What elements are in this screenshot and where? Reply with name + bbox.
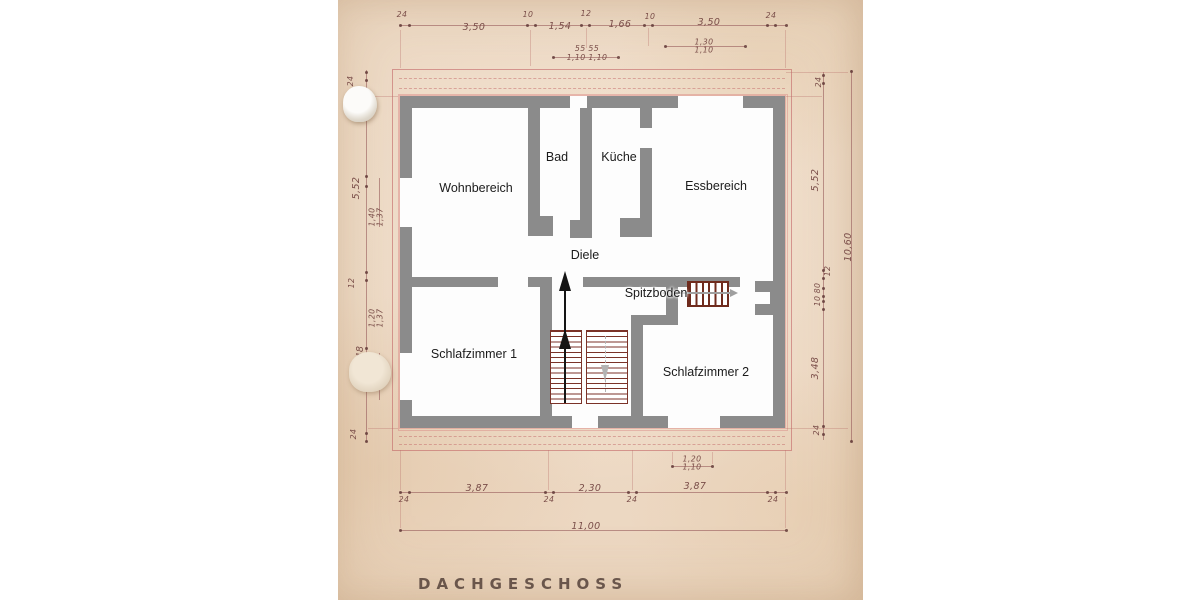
wall-segment — [598, 416, 668, 428]
extension-line — [632, 450, 633, 490]
dimension-tick — [580, 24, 583, 27]
dimension-tick — [365, 71, 368, 74]
dimension-tick — [365, 440, 368, 443]
dim-label: 1,30 1,10 — [695, 39, 714, 56]
dimension-tick — [822, 308, 825, 311]
room-label-spitzboden: Spitzboden — [625, 286, 688, 300]
roof-dash-line — [399, 436, 785, 437]
walking-line-arrow-icon — [601, 365, 609, 381]
dimension-tick — [635, 491, 638, 494]
dim-label: 1,20 1,10 — [683, 456, 702, 473]
dim-label: 1,10 1,10 — [567, 54, 608, 62]
stairs-up-arrowhead-icon — [559, 329, 571, 349]
extension-line — [400, 450, 401, 490]
hole-punch — [343, 86, 377, 122]
dim-label: 3,87 — [466, 484, 489, 494]
wall-segment — [580, 108, 592, 220]
dimension-tick — [588, 24, 591, 27]
dimension-tick — [785, 529, 788, 532]
dimension-tick — [822, 300, 825, 303]
wall-segment — [400, 96, 570, 108]
room-label-essbereich: Essbereich — [685, 179, 747, 193]
dim-label: 10,60 — [844, 232, 854, 261]
dimension-tick — [617, 56, 620, 59]
dimension-tick — [822, 277, 825, 280]
dimension-tick — [711, 465, 714, 468]
dimension-tick — [785, 24, 788, 27]
wall-segment — [528, 108, 540, 216]
dim-label: 3,50 — [698, 18, 721, 28]
dim-label: 3,87 — [684, 482, 707, 492]
wall-segment — [640, 148, 652, 218]
dim-label: 2,30 — [579, 484, 602, 494]
extension-line — [785, 450, 786, 490]
dim-label: 24 — [813, 425, 821, 436]
dimension-tick — [399, 529, 402, 532]
dimension-line — [823, 72, 824, 440]
room-label-wohnbereich: Wohnbereich — [439, 181, 512, 195]
dim-label: 5,52 — [352, 177, 362, 200]
dimension-tick — [822, 433, 825, 436]
extension-line — [548, 450, 549, 490]
dim-label: 10 — [814, 296, 822, 307]
dimension-tick — [744, 45, 747, 48]
dim-label: 12 — [824, 266, 832, 277]
dimension-tick — [365, 271, 368, 274]
dimension-tick — [365, 79, 368, 82]
wall-segment — [412, 277, 498, 287]
extension-line — [786, 72, 848, 73]
dimension-tick — [627, 491, 630, 494]
dim-label: 24 — [347, 76, 355, 87]
plan-title: DACHGESCHOSS — [418, 575, 628, 593]
wall-segment — [570, 220, 592, 238]
dimension-tick — [766, 24, 769, 27]
hatch-arrow-right-icon — [730, 289, 738, 297]
dimension-tick — [399, 24, 402, 27]
roof-dash-line — [399, 78, 785, 79]
dimension-tick — [822, 287, 825, 290]
dim-label: 24 — [544, 496, 555, 504]
dim-label: 24 — [766, 12, 777, 20]
dimension-tick — [534, 24, 537, 27]
dim-label: 10 — [645, 13, 656, 21]
dim-label: 80 — [814, 283, 822, 294]
attic-hatch-icon — [687, 281, 729, 307]
dim-label: 1,66 — [609, 20, 632, 30]
dim-label: 24 — [815, 77, 823, 88]
dimension-tick — [365, 432, 368, 435]
wall-segment — [640, 108, 652, 128]
wall-segment — [773, 96, 785, 428]
dimension-tick — [552, 491, 555, 494]
dim-label: 10 — [523, 11, 534, 19]
wall-segment — [400, 227, 412, 353]
dimension-tick — [365, 185, 368, 188]
dimension-tick — [544, 491, 547, 494]
room-label-schlafzimmer-2: Schlafzimmer 2 — [663, 365, 749, 379]
room-label-diele: Diele — [571, 248, 600, 262]
wall-segment — [620, 218, 652, 237]
dimension-line — [400, 25, 786, 26]
wall-segment — [400, 416, 572, 428]
extension-line — [648, 28, 649, 46]
wall-segment — [720, 416, 785, 428]
dim-label: 1,54 — [549, 22, 572, 32]
room-label-bad: Bad — [546, 150, 568, 164]
dimension-tick — [365, 175, 368, 178]
dimension-tick — [552, 56, 555, 59]
wall-niche — [755, 292, 770, 304]
dimension-tick — [785, 491, 788, 494]
wall-segment — [631, 315, 678, 325]
wall-segment — [400, 96, 412, 178]
extension-line — [785, 30, 786, 68]
room-label-kueche: Küche — [601, 150, 636, 164]
dim-label: 3,50 — [463, 23, 486, 33]
dimension-tick — [822, 295, 825, 298]
dim-label: 5,52 — [811, 169, 821, 192]
roof-dash-line — [399, 88, 785, 89]
dimension-tick — [526, 24, 529, 27]
extension-line — [712, 452, 713, 464]
dimension-tick — [365, 279, 368, 282]
walking-line — [605, 336, 606, 392]
extension-line — [786, 96, 822, 97]
extension-line — [672, 452, 673, 464]
dimension-tick — [774, 24, 777, 27]
dimension-tick — [774, 491, 777, 494]
room-label-schlafzimmer-1: Schlafzimmer 1 — [431, 347, 517, 361]
extension-line — [368, 428, 398, 429]
dimension-tick — [766, 491, 769, 494]
dim-label: 24 — [768, 496, 779, 504]
dimension-tick — [408, 491, 411, 494]
wall-segment — [528, 216, 553, 236]
dimension-tick — [671, 465, 674, 468]
dim-label: 12 — [348, 278, 356, 289]
dim-label: 24 — [627, 496, 638, 504]
dimension-tick — [408, 24, 411, 27]
dimension-tick — [399, 491, 402, 494]
dim-label: 24 — [350, 429, 358, 440]
floor-plan-scan: WohnbereichBadKücheEssbereichDieleSpitzb… — [0, 0, 1200, 600]
extension-line — [400, 30, 401, 68]
dimension-tick — [822, 425, 825, 428]
wall-segment — [587, 96, 678, 108]
roof-dash-line — [399, 444, 785, 445]
stairs-up-arrowhead-icon — [559, 271, 571, 291]
dimension-tick — [651, 24, 654, 27]
dim-label: 3,48 — [811, 357, 821, 380]
dimension-tick — [664, 45, 667, 48]
extension-line — [785, 497, 786, 528]
wall-segment — [631, 325, 643, 416]
extension-line — [530, 30, 531, 66]
hole-punch — [349, 352, 391, 392]
dim-label: 1,40 1,37 — [369, 208, 386, 227]
dim-label: 12 — [581, 10, 592, 18]
dim-label: 24 — [397, 11, 408, 19]
dim-label: 24 — [399, 496, 410, 504]
dimension-tick — [643, 24, 646, 27]
dim-label: 1,20 1,37 — [369, 309, 386, 328]
dimension-tick — [850, 440, 853, 443]
dimension-tick — [850, 70, 853, 73]
dim-label: 11,00 — [571, 522, 600, 532]
